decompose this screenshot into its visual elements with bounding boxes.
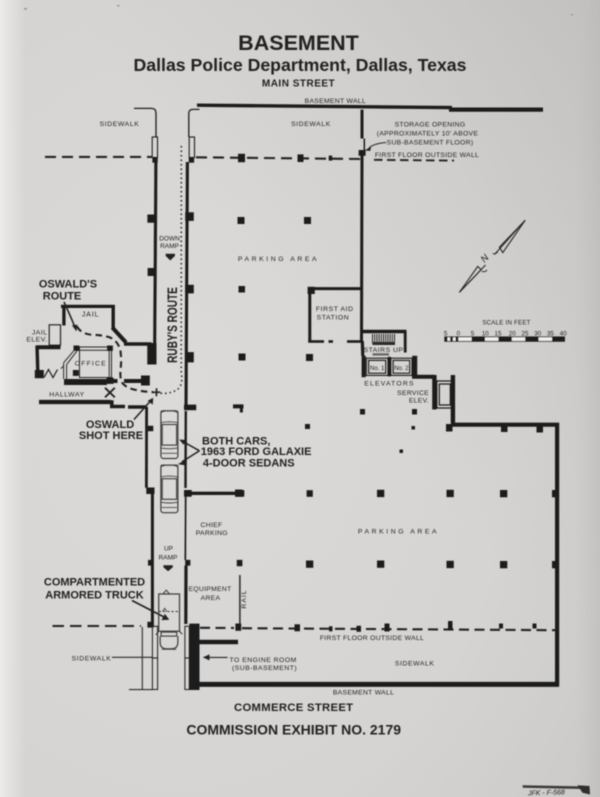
svg-text:ROUTE: ROUTE: [43, 291, 82, 303]
svg-text:JFK - F-568: JFK - F-568: [527, 789, 565, 797]
svg-text:ARMORED TRUCK: ARMORED TRUCK: [45, 590, 143, 602]
svg-text:1963 FORD GALAXIE: 1963 FORD GALAXIE: [201, 446, 312, 458]
svg-text:JAIL: JAIL: [32, 330, 48, 337]
svg-text:HALLWAY: HALLWAY: [49, 391, 84, 398]
svg-text:PARKING: PARKING: [196, 530, 228, 537]
svg-text:EQUIPMENT: EQUIPMENT: [188, 586, 231, 593]
svg-text:JAIL: JAIL: [82, 310, 100, 319]
svg-text:SUB-BASEMENT FLOOR): SUB-BASEMENT FLOOR): [387, 140, 474, 147]
svg-text:BASEMENT: BASEMENT: [238, 31, 359, 55]
svg-text:UP: UP: [164, 545, 173, 552]
svg-text:No. 2: No. 2: [394, 366, 409, 372]
svg-text:RAMP: RAMP: [160, 243, 179, 250]
svg-text:FIRST AID: FIRST AID: [316, 306, 354, 313]
svg-text:RAMP: RAMP: [159, 554, 178, 561]
svg-text:SCALE IN FEET: SCALE IN FEET: [482, 320, 530, 327]
svg-text:PARKING AREA: PARKING AREA: [358, 529, 439, 536]
svg-text:FIRST FLOOR OUTSIDE WALL: FIRST FLOOR OUTSIDE WALL: [320, 635, 424, 642]
svg-text:SIDEWALK: SIDEWALK: [72, 655, 112, 662]
svg-text:BASEMENT WALL: BASEMENT WALL: [305, 98, 366, 105]
svg-text:TO ENGINE ROOM: TO ENGINE ROOM: [230, 657, 297, 664]
svg-text:SIDEWALK: SIDEWALK: [291, 121, 331, 128]
svg-text:Dallas Police Department, Dall: Dallas Police Department, Dallas, Texas: [134, 55, 467, 75]
svg-text:(APPROXIMATELY 10' ABOVE: (APPROXIMATELY 10' ABOVE: [377, 131, 479, 138]
svg-text:BASEMENT WALL: BASEMENT WALL: [333, 689, 394, 696]
svg-text:(SUB-BASEMENT): (SUB-BASEMENT): [232, 665, 297, 672]
svg-text:COMMISSION EXHIBIT NO. 2179: COMMISSION EXHIBIT NO. 2179: [186, 722, 401, 738]
svg-text:ELEVATORS: ELEVATORS: [364, 381, 414, 388]
svg-text:COMPARTMENTED: COMPARTMENTED: [44, 576, 145, 588]
svg-text:No. 1: No. 1: [370, 366, 385, 372]
svg-text:RAIL: RAIL: [241, 589, 248, 608]
svg-text:SIDEWALK: SIDEWALK: [100, 121, 140, 128]
svg-text:DOWN: DOWN: [159, 236, 180, 243]
svg-text:4-DOOR SEDANS: 4-DOOR SEDANS: [203, 457, 295, 469]
svg-text:STORAGE OPENING: STORAGE OPENING: [395, 122, 466, 129]
svg-text:MAIN STREET: MAIN STREET: [262, 79, 335, 90]
svg-text:COMMERCE STREET: COMMERCE STREET: [234, 702, 353, 714]
svg-text:CHIEF: CHIEF: [201, 522, 223, 529]
svg-text:OSWALD'S: OSWALD'S: [39, 279, 97, 291]
svg-text:ELEV.: ELEV.: [26, 337, 47, 344]
svg-text:FIRST FLOOR OUTSIDE WALL: FIRST FLOOR OUTSIDE WALL: [375, 152, 479, 159]
svg-text:ELEV.: ELEV.: [409, 397, 429, 404]
svg-text:AREA: AREA: [201, 595, 221, 602]
svg-text:SIDEWALK: SIDEWALK: [395, 660, 435, 667]
svg-text:RUBY'S ROUTE: RUBY'S ROUTE: [165, 287, 181, 363]
svg-text:STATION: STATION: [317, 315, 350, 322]
svg-text:SERVICE: SERVICE: [397, 390, 429, 397]
svg-text:STAIRS UP: STAIRS UP: [364, 347, 404, 354]
svg-text:PARKING AREA: PARKING AREA: [238, 256, 319, 263]
svg-text:OFFICE: OFFICE: [75, 361, 107, 368]
svg-text:SHOT HERE: SHOT HERE: [79, 430, 143, 442]
